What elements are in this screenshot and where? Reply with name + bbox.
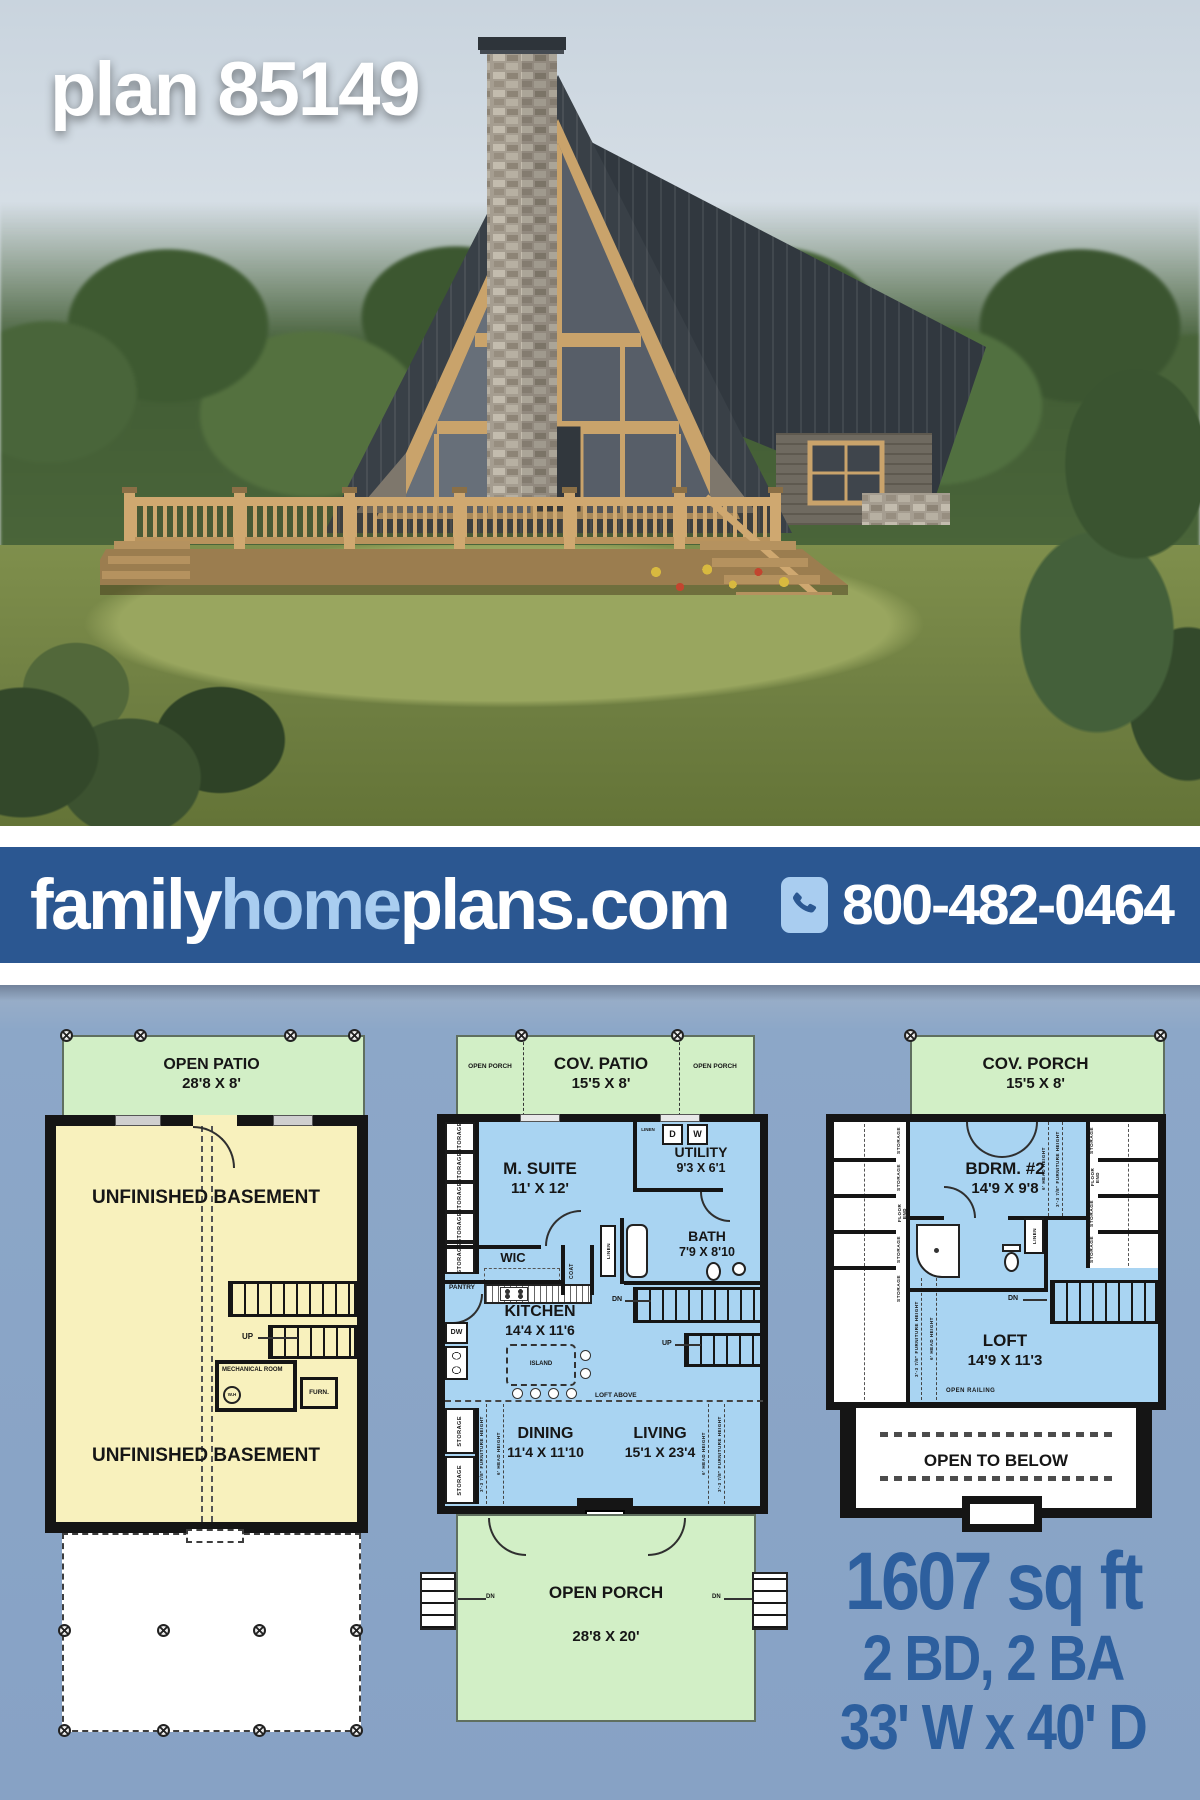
stool	[566, 1388, 577, 1399]
pin-image: plan 85149 familyhomeplans.com 800-482-0…	[0, 0, 1200, 1800]
basement-stairs-lower-flight	[268, 1325, 357, 1359]
unfinished-basement-upper-label: UNFINISHED BASEMENT	[56, 1186, 356, 1210]
wall	[1098, 1230, 1158, 1234]
furniture-height-label: 3'-3 7/8" FURNITURE HEIGHT	[1055, 1124, 1060, 1214]
toilet	[706, 1262, 721, 1281]
storage-label: STORAGE	[457, 1465, 463, 1496]
mechanical-room-label: MECHANICAL ROOM	[222, 1367, 294, 1375]
loft-label: LOFT	[930, 1330, 1080, 1351]
post-symbol	[1154, 1029, 1167, 1042]
height-guide	[1062, 1122, 1063, 1216]
post-symbol	[253, 1624, 266, 1637]
post-symbol	[348, 1029, 361, 1042]
basement-stairs-upper-flight	[228, 1281, 357, 1317]
floor-end-label: FLOOR END	[1090, 1162, 1100, 1192]
wic-label: WIC	[478, 1250, 548, 1266]
utility-dims: 9'3 X 6'1	[638, 1161, 764, 1177]
roof-edge-dashes	[880, 1476, 1112, 1481]
right-tree	[980, 320, 1200, 800]
chimney-symbol	[962, 1496, 1042, 1532]
dryer-label: D	[669, 1129, 676, 1140]
storage-label: STORAGE	[457, 1122, 463, 1153]
cov-porch-dims: 15'5 X 8'	[912, 1075, 1159, 1094]
post-symbol	[904, 1029, 917, 1042]
toilet	[1004, 1252, 1019, 1272]
patio-open-porch-left: OPEN PORCH	[460, 1063, 520, 1071]
unfinished-basement-lower-label: UNFINISHED BASEMENT	[56, 1444, 356, 1468]
plan-stats: 1607 sq ft 2 BD, 2 BA 33' W x 40' D	[790, 1540, 1196, 1762]
stool	[512, 1388, 523, 1399]
post-symbol	[58, 1724, 71, 1737]
linen-label: LINEN	[636, 1127, 660, 1133]
plan-number-title: plan 85149	[50, 46, 419, 133]
wall	[441, 1280, 563, 1284]
coat-closet-label: COAT	[569, 1252, 575, 1290]
wall	[1098, 1194, 1158, 1198]
stairs-dn-label: DN	[712, 1594, 721, 1602]
loft-dims: 14'9 X 11'3	[930, 1352, 1080, 1371]
master-suite-dims: 11' X 12'	[480, 1180, 600, 1199]
brand-wordmark: familyhomeplans.com	[30, 847, 728, 963]
storage-label: STORAGE	[897, 1234, 902, 1264]
storage-box: STORAGE	[445, 1122, 475, 1152]
leader-line	[258, 1337, 298, 1339]
storage-label: STORAGE	[457, 1182, 463, 1213]
water-heater-label: W.H	[228, 1392, 237, 1398]
wall	[590, 1245, 594, 1295]
roof-storage-column	[834, 1122, 896, 1402]
porch-stairs-right	[752, 1572, 788, 1630]
loft-above-dashed-line	[445, 1400, 763, 1402]
storage-label: STORAGE	[457, 1152, 463, 1183]
bath-dims: 7'9 X 8'10	[650, 1245, 764, 1261]
loft-above-label: LOFT ABOVE	[592, 1392, 640, 1400]
wall	[834, 1158, 896, 1162]
dryer: D	[662, 1124, 683, 1145]
post-symbol	[157, 1624, 170, 1637]
wall	[910, 1216, 944, 1220]
water-heater: W.H	[223, 1386, 241, 1404]
living-label: LIVING	[595, 1424, 725, 1444]
storage-label: STORAGE	[897, 1272, 902, 1304]
wall	[441, 1245, 541, 1249]
post-symbol	[671, 1029, 684, 1042]
dining-dims: 11'4 X 11'10	[478, 1444, 613, 1462]
storage-box: STORAGE	[445, 1152, 475, 1182]
utility-label: UTILITY	[638, 1144, 764, 1162]
phone-number: 800-482-0464	[842, 847, 1173, 963]
post-symbol	[58, 1624, 71, 1637]
post-symbol	[60, 1029, 73, 1042]
stairs-dn-label: DN	[486, 1594, 495, 1602]
toilet-tank	[1002, 1244, 1021, 1252]
furnace: FURN.	[300, 1377, 338, 1409]
island-label: ISLAND	[530, 1361, 552, 1369]
storage-label: STORAGE	[897, 1124, 902, 1156]
height-guide	[921, 1278, 922, 1400]
patio-divider	[679, 1037, 680, 1116]
window-gap	[273, 1115, 313, 1126]
brand-family: family	[30, 865, 220, 946]
dishwasher: DW	[445, 1322, 468, 1344]
linen-label: LINEN	[1032, 1228, 1037, 1244]
porch-door-arc	[488, 1518, 526, 1556]
storage-label: STORAGE	[897, 1162, 902, 1192]
kitchen-dims: 14'4 X 11'6	[470, 1322, 610, 1340]
stool	[580, 1368, 591, 1379]
stairs-down-flight	[633, 1287, 764, 1323]
storage-box: STORAGE	[445, 1182, 475, 1212]
storage-box: STORAGE	[445, 1408, 475, 1454]
dining-label: DINING	[478, 1424, 613, 1444]
bath-sink	[732, 1262, 746, 1276]
stove	[500, 1287, 528, 1301]
porch-door-arc	[648, 1518, 686, 1556]
stool	[580, 1350, 591, 1361]
open-to-below-label: OPEN TO BELOW	[870, 1450, 1122, 1471]
basement-open-patio: OPEN PATIO 28'8 X 8'	[62, 1035, 365, 1119]
height-guide	[1048, 1122, 1049, 1216]
square-footage: 1607 sq ft	[820, 1540, 1165, 1624]
stairs-up-label: UP	[242, 1332, 253, 1342]
furniture-height-label: 3'-3 7/8" FURNITURE HEIGHT	[914, 1280, 919, 1398]
wall	[620, 1218, 624, 1284]
linen-label: LINEN	[606, 1243, 611, 1259]
storage-label: STORAGE	[1090, 1234, 1095, 1264]
dw-label: DW	[451, 1329, 463, 1338]
leader-line	[724, 1598, 752, 1600]
bathtub	[626, 1224, 648, 1278]
leader-line	[675, 1344, 701, 1346]
linen-closet: LINEN	[1024, 1218, 1044, 1254]
open-porch-dims: 28'8 X 20'	[531, 1628, 681, 1647]
brand-plans: plans.com	[400, 865, 729, 946]
cov-patio-label: COV. PATIO	[525, 1053, 677, 1074]
stool	[548, 1388, 559, 1399]
open-railing-label: OPEN RAILING	[946, 1388, 995, 1396]
porch-stairs-left	[420, 1572, 456, 1630]
kitchen-sink	[445, 1346, 468, 1380]
bath-linen-closet: LINEN	[600, 1225, 616, 1277]
phone-handset-icon	[788, 888, 822, 922]
floor-end-label: FLOOR END	[897, 1198, 907, 1228]
wall	[834, 1230, 896, 1234]
storage-box: STORAGE	[445, 1212, 475, 1242]
footprint-dimensions: 33' W x 40' D	[820, 1693, 1165, 1762]
storage-label: STORAGE	[1090, 1124, 1095, 1156]
window-gap	[520, 1114, 560, 1122]
patio-open-porch-right: OPEN PORCH	[683, 1063, 747, 1071]
wall	[834, 1194, 896, 1198]
stairs-down-flight	[1050, 1280, 1158, 1324]
master-suite-label: M. SUITE	[480, 1158, 600, 1179]
post-symbol	[134, 1029, 147, 1042]
upper-cov-porch: COV. PORCH 15'5 X 8'	[910, 1035, 1165, 1118]
storage-label: STORAGE	[1090, 1198, 1095, 1228]
stairs-dn-label: DN	[1008, 1295, 1018, 1304]
open-porch-label: OPEN PORCH	[546, 1582, 666, 1603]
shower-drain	[934, 1248, 939, 1253]
post-symbol	[253, 1724, 266, 1737]
wall	[561, 1245, 565, 1295]
patio-divider	[523, 1037, 524, 1116]
post-symbol	[515, 1029, 528, 1042]
head-height-label: 6' HEAD HEIGHT	[1041, 1124, 1046, 1214]
storage-label: STORAGE	[457, 1416, 463, 1447]
living-dims: 15'1 X 23'4	[595, 1444, 725, 1462]
cov-porch-label: COV. PORCH	[912, 1053, 1159, 1074]
wall	[624, 1281, 764, 1285]
storage-dashed-line	[864, 1124, 865, 1400]
main-open-porch: OPEN PORCH 28'8 X 20'	[456, 1514, 756, 1722]
wall	[1098, 1158, 1158, 1162]
washer-label: W	[693, 1129, 702, 1140]
open-patio-label: OPEN PATIO	[64, 1055, 359, 1075]
bath-label: BATH	[650, 1228, 764, 1246]
phone-icon	[781, 877, 828, 933]
cov-patio-dims: 15'5 X 8'	[525, 1075, 677, 1094]
stairs-dn-label: DN	[612, 1296, 622, 1305]
leader-line	[625, 1300, 651, 1302]
stairs-up-label: UP	[662, 1340, 672, 1349]
post-symbol	[350, 1724, 363, 1737]
kitchen-label: KITCHEN	[470, 1302, 610, 1322]
window-gap	[660, 1114, 700, 1122]
leader-line	[1023, 1299, 1047, 1301]
wall	[1044, 1216, 1048, 1292]
pantry-label: PANTRY	[439, 1284, 485, 1292]
flower-bed	[640, 552, 800, 602]
wall	[910, 1288, 1048, 1292]
furnace-label: FURN.	[309, 1389, 329, 1397]
washer: W	[687, 1124, 708, 1145]
storage-box: STORAGE	[445, 1456, 475, 1504]
post-symbol	[284, 1029, 297, 1042]
foreground-bushes	[0, 590, 310, 840]
section-top-shadow	[0, 985, 1200, 1001]
bed-bath-count: 2 BD, 2 BA	[820, 1624, 1165, 1693]
stairs-up-flight	[684, 1333, 764, 1367]
brand-home: home	[220, 865, 399, 946]
door-gap	[193, 1115, 237, 1126]
storage-label: STORAGE	[457, 1212, 463, 1243]
wall	[834, 1266, 896, 1270]
window-gap	[115, 1115, 161, 1126]
basement-porch-footprint	[62, 1533, 361, 1732]
mechanical-room: MECHANICAL ROOM W.H	[215, 1360, 297, 1412]
stool	[530, 1388, 541, 1399]
open-patio-dims: 28'8 X 8'	[64, 1075, 359, 1094]
leader-line	[458, 1598, 486, 1600]
kitchen-island: ISLAND	[506, 1344, 576, 1386]
roof-edge-dashes	[880, 1432, 1112, 1437]
post-symbol	[157, 1724, 170, 1737]
main-cov-patio: OPEN PORCH COV. PATIO 15'5 X 8' OPEN POR…	[456, 1035, 755, 1118]
porch-notch	[186, 1529, 244, 1543]
post-symbol	[350, 1624, 363, 1637]
